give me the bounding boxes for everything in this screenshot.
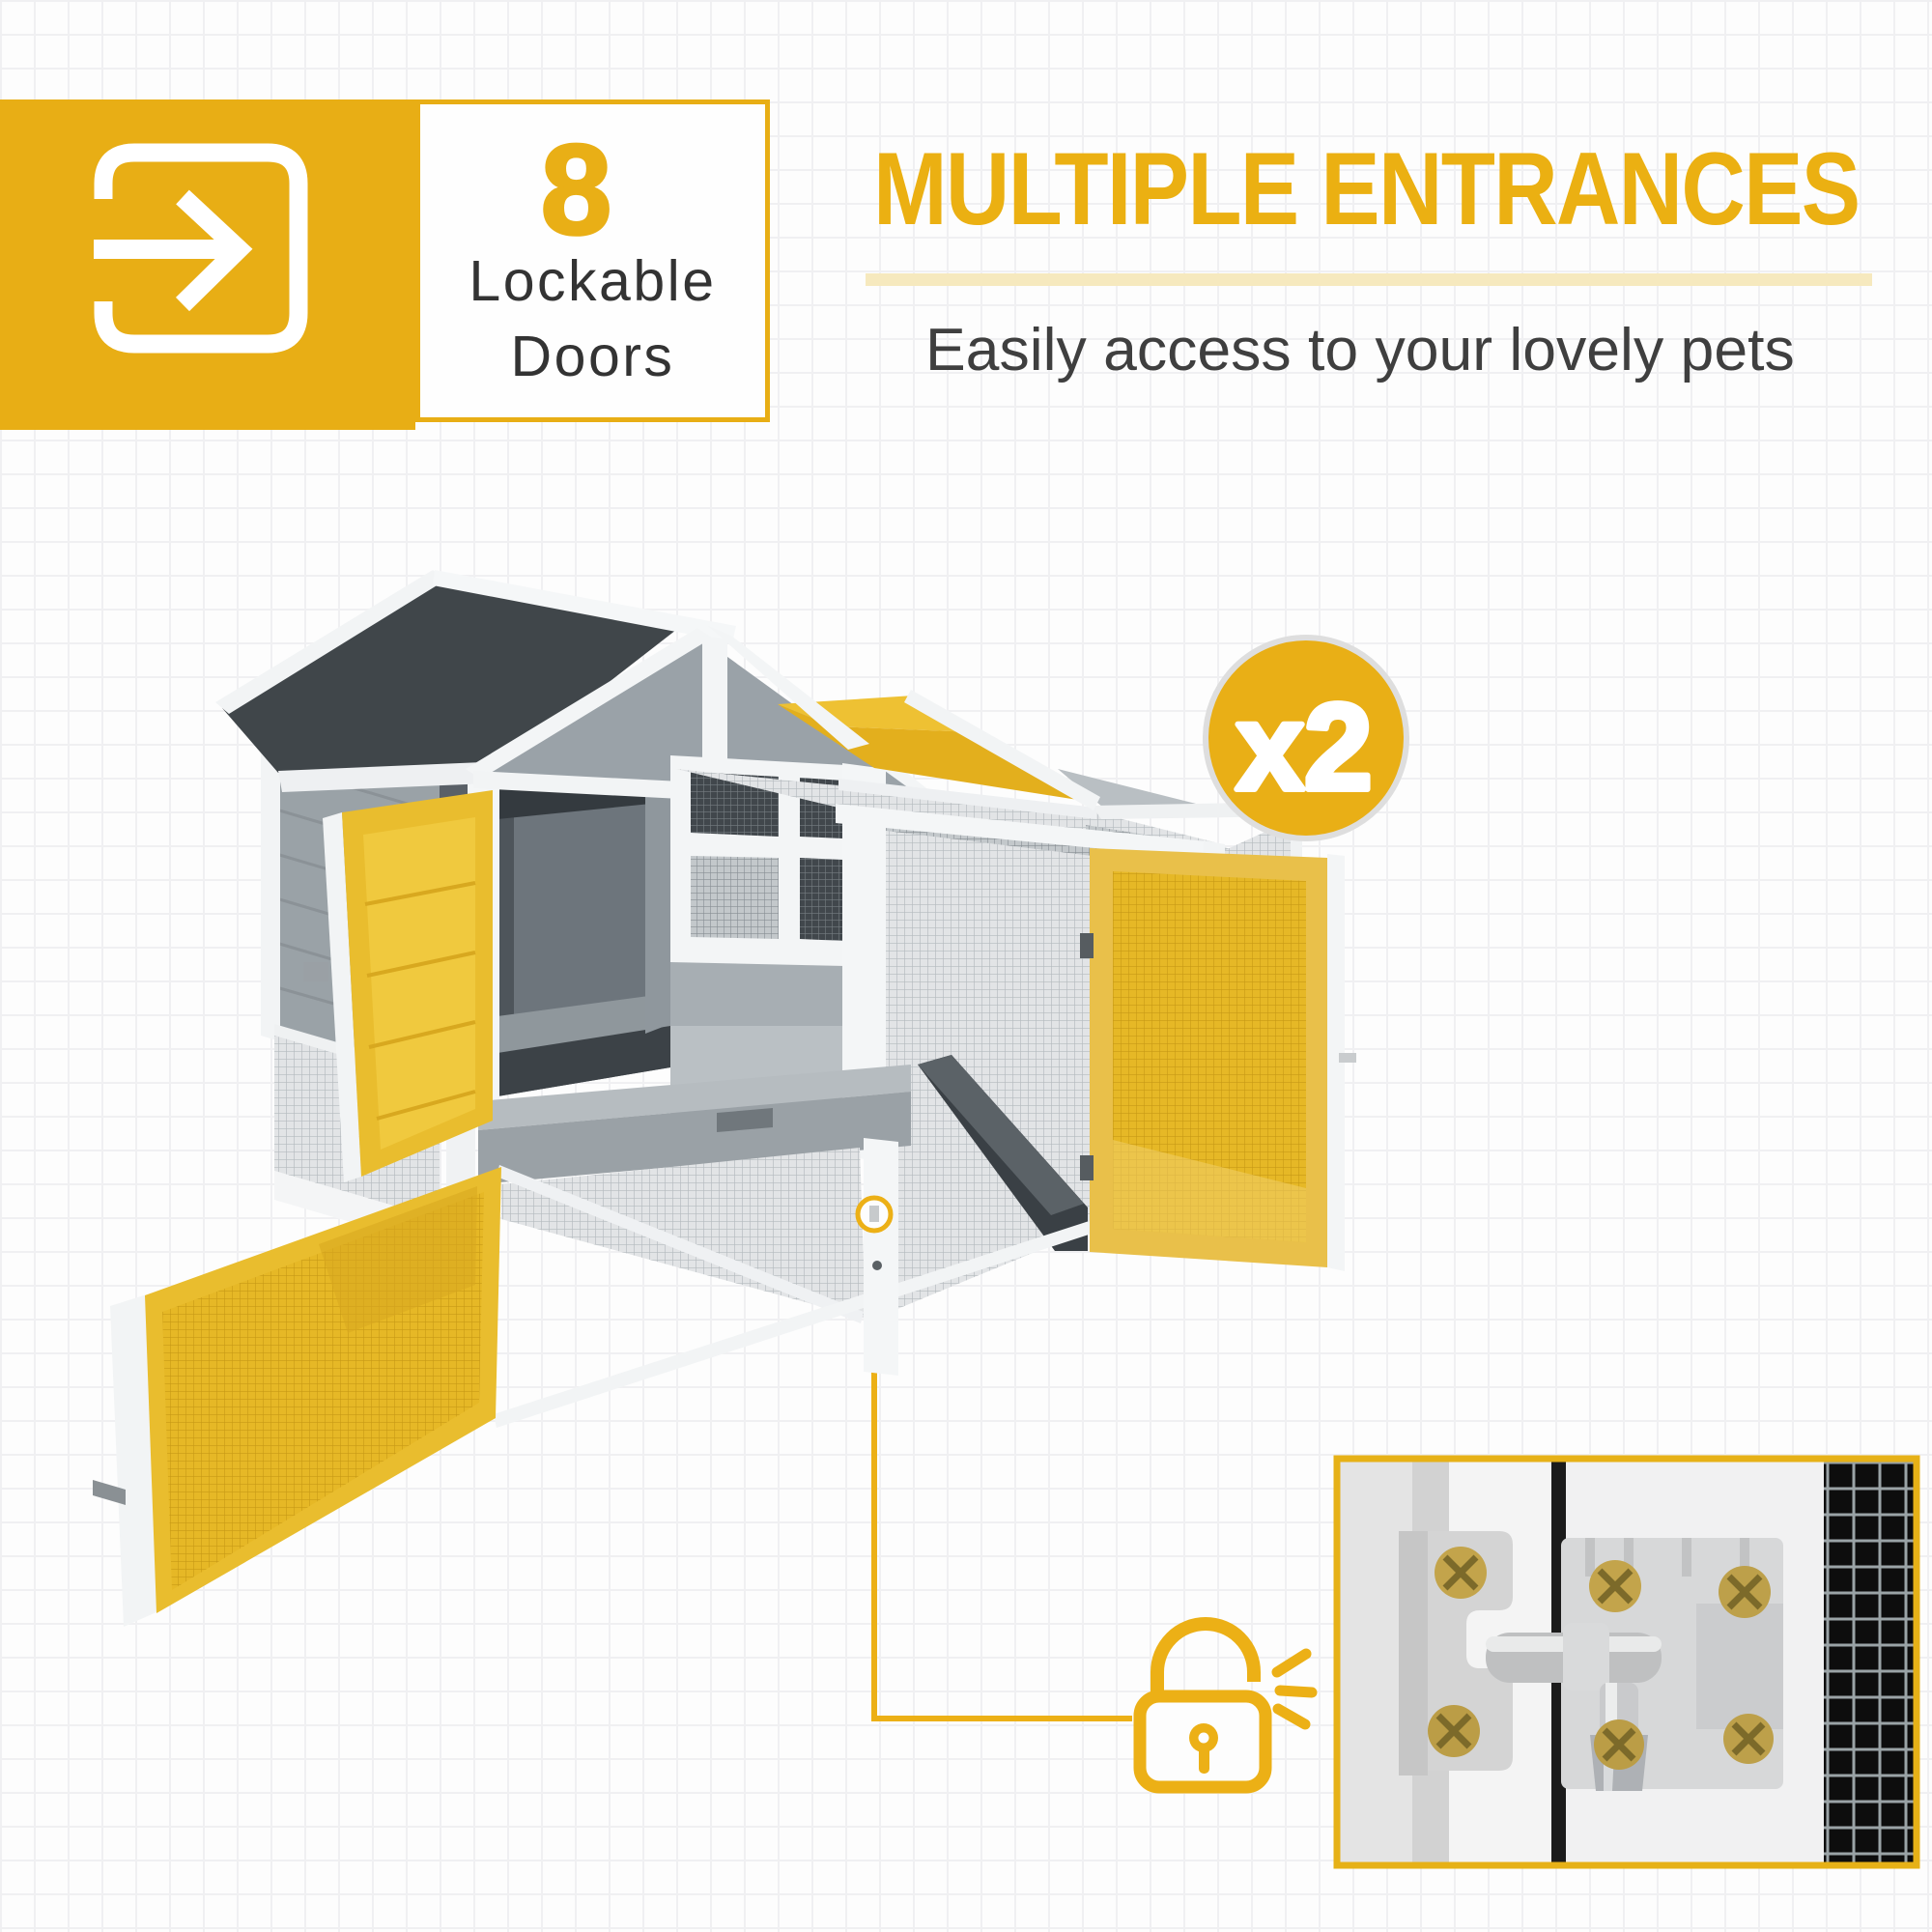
svg-text:x2: x2 — [1236, 678, 1372, 815]
